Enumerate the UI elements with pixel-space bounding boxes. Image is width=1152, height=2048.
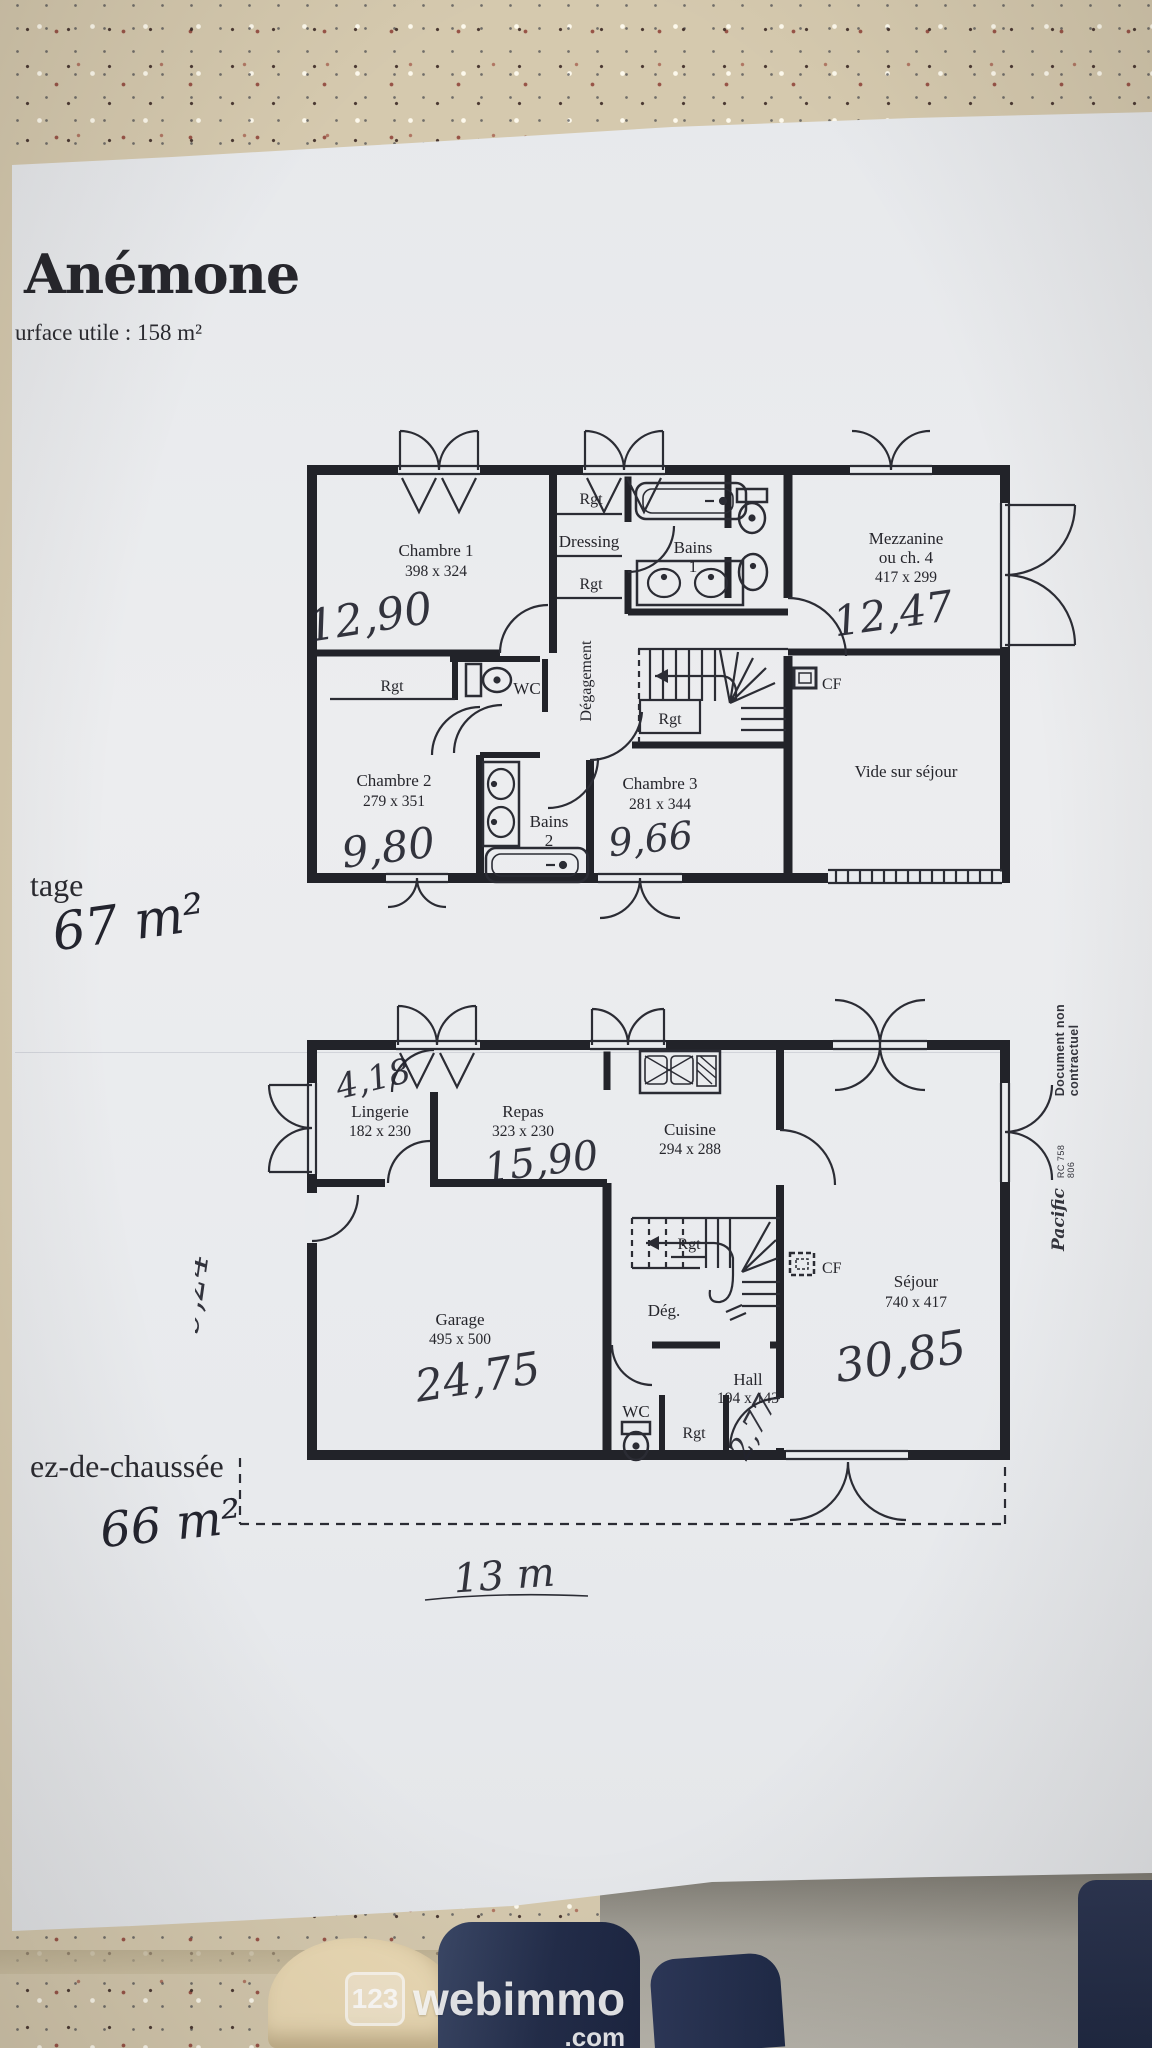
- terrace-dashed-outline: [240, 1458, 1005, 1524]
- room-dims-lingerie: 182 x 230: [349, 1123, 411, 1140]
- room-num-bains1: 1: [689, 557, 698, 576]
- room-dims-chambre3: 281 x 344: [629, 796, 691, 813]
- room-label-wc: WC: [513, 679, 540, 698]
- watermark-logo: 123 webimmo .com: [345, 1972, 625, 2048]
- registration-number: RC 758 806: [1056, 1132, 1076, 1178]
- margin-note: Pacific RC 758 806 Document non contract…: [1049, 951, 1077, 1251]
- room-labels: Chambre 1 398 x 324 Rgt Dressing Rgt Bai…: [356, 491, 957, 850]
- hand-area-mezzanine: 12,47: [830, 581, 956, 646]
- floor-label-rdc: ez-de-chaussée: [30, 1448, 224, 1485]
- toilet-icon: [466, 664, 511, 696]
- hand-area-garage: 24,75: [411, 1343, 544, 1413]
- chimney-icon: [794, 668, 816, 688]
- person-jeans-leg: [649, 1952, 785, 2048]
- room-label-bains1: Bains: [674, 538, 713, 557]
- handwritten-areas: 12,90 12,47 9,80 9,66: [304, 581, 957, 878]
- room-dims-garage: 495 x 500: [429, 1331, 491, 1348]
- closet-label: Rgt: [682, 1425, 706, 1442]
- room-dims-cuisine: 294 x 288: [659, 1141, 721, 1158]
- room-dims-chambre2: 279 x 351: [363, 793, 425, 810]
- watermark-tld: .com: [564, 2024, 625, 2048]
- room-label-dressing: Dressing: [559, 532, 620, 551]
- room-dims-sejour: 740 x 417: [885, 1294, 947, 1311]
- closet-label: Rgt: [579, 576, 603, 593]
- hand-area-chambre3: 9,66: [606, 813, 695, 866]
- room-label-sejour: Séjour: [894, 1272, 939, 1291]
- room-label-bains2: Bains: [530, 812, 569, 831]
- brand-logo: Pacific: [1049, 1188, 1069, 1251]
- closet-label: Rgt: [380, 678, 404, 695]
- room-label-degagement: Dég.: [648, 1301, 681, 1320]
- room-label-chambre2: Chambre 2: [356, 771, 431, 790]
- room-label-chambre3: Chambre 3: [622, 774, 697, 793]
- room-label-degagement: Dégagement: [578, 640, 595, 721]
- room-label-lingerie: Lingerie: [351, 1102, 409, 1121]
- disclaimer-text: Document non contractuel: [1053, 951, 1081, 1096]
- hand-area-chambre2: 9,80: [339, 818, 438, 878]
- surface-note: urface utile : 158 m²: [15, 320, 202, 346]
- kitchen-sink-icon: [640, 1051, 720, 1093]
- room-label-chambre1: Chambre 1: [398, 541, 473, 560]
- floor-plan-etage: Chambre 1 398 x 324 Rgt Dressing Rgt Bai…: [195, 385, 1085, 945]
- chimney-label: CF: [822, 1260, 842, 1277]
- room-label-garage: Garage: [435, 1310, 484, 1329]
- watermark-badge: 123: [345, 1972, 405, 2026]
- room-label-cuisine: Cuisine: [664, 1120, 716, 1139]
- hand-dim-top: 4,18: [331, 1051, 415, 1108]
- chimney-label: CF: [822, 676, 842, 693]
- room-label-wc: WC: [622, 1402, 649, 1421]
- room-num-bains2: 2: [545, 831, 554, 850]
- room-alt-mezzanine: ou ch. 4: [879, 548, 934, 567]
- chimney-icon: [790, 1253, 814, 1275]
- hand-dim-left: 9,24: [195, 1251, 217, 1336]
- closet-label: Rgt: [579, 491, 603, 508]
- hand-area-chambre1: 12,90: [304, 583, 436, 653]
- floor-plan-rdc: Lingerie 182 x 230 Repas 323 x 230 Cuisi…: [195, 995, 1085, 1625]
- hand-area-sejour: 30,85: [831, 1319, 970, 1393]
- page-title: Anémone: [24, 242, 299, 306]
- stairs-icon: [638, 649, 788, 744]
- room-dims-chambre1: 398 x 324: [405, 563, 467, 580]
- toilet-icon: [737, 489, 767, 533]
- closet-label: Rgt: [658, 711, 682, 728]
- room-label-mezzanine: Mezzanine: [869, 529, 944, 548]
- watermark-name: webimmo: [413, 1976, 625, 2022]
- room-label-hall: Hall: [733, 1370, 763, 1389]
- person-jeans-leg: [1078, 1880, 1152, 2048]
- double-sink-icon: [483, 762, 519, 846]
- closet-label: Rgt: [677, 1236, 701, 1253]
- room-label-repas: Repas: [502, 1102, 544, 1121]
- floor-label-etage: tage: [30, 867, 83, 904]
- photo-of-floorplan: Anémone urface utile : 158 m²: [0, 0, 1152, 2048]
- room-dims-repas: 323 x 230: [492, 1123, 554, 1140]
- room-label-vide: Vide sur séjour: [855, 762, 958, 781]
